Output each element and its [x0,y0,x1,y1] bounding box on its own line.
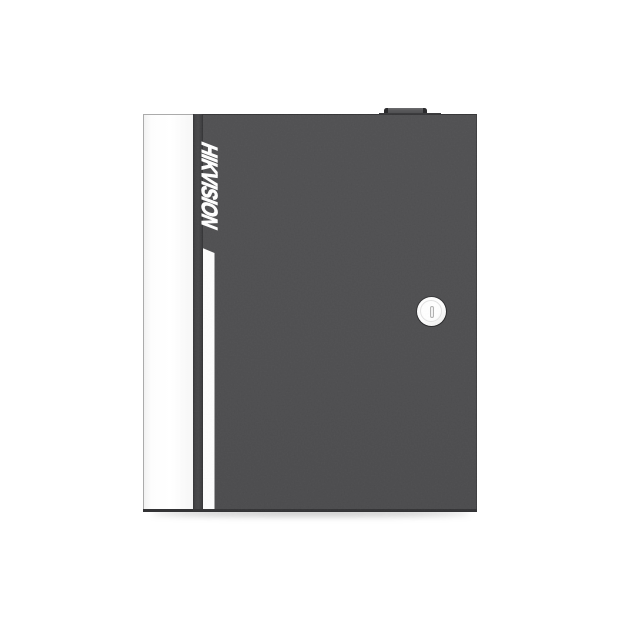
svg-text:HIKVISION: HIKVISION [197,141,221,231]
